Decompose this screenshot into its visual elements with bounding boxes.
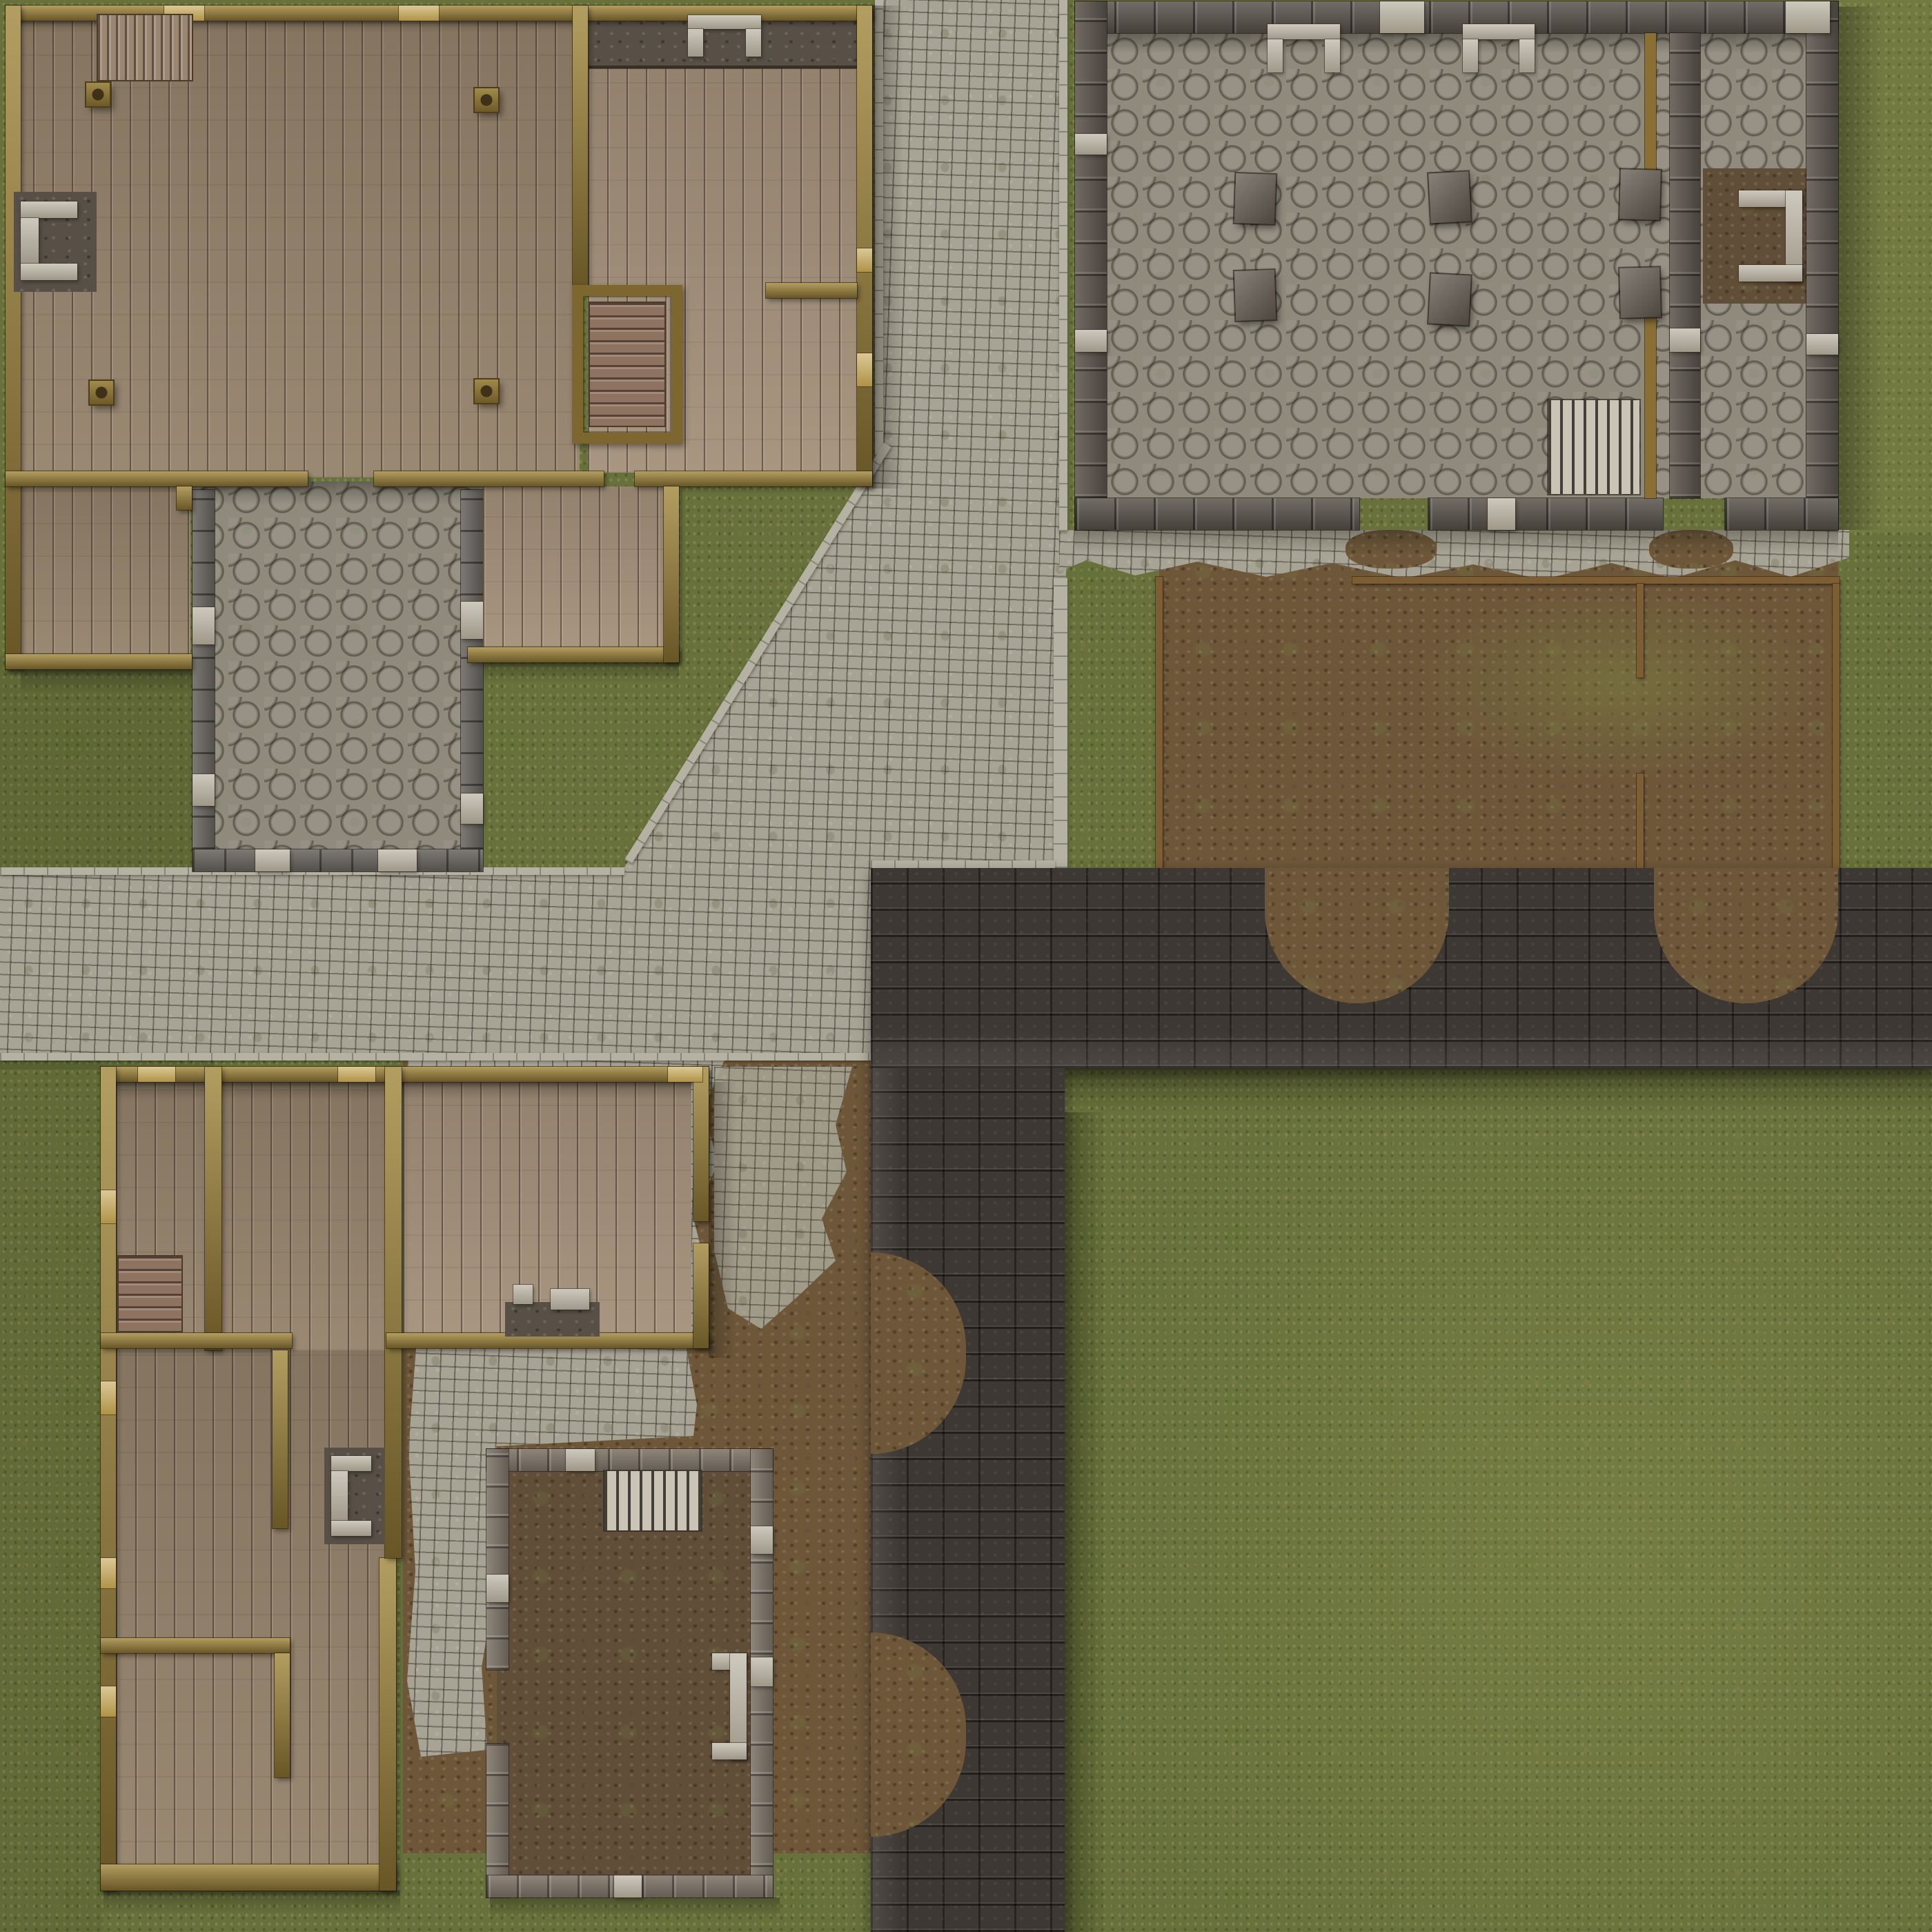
house-wall-interior-v2 [205,1067,221,1350]
house-floor-hall [116,1350,388,1875]
alcove-forge-leg-e [746,29,761,57]
alcove-forge-top [688,15,761,29]
shed-wall-north [486,1449,773,1471]
house-window-n2 [338,1067,375,1082]
house-wall-south [101,1864,396,1891]
support-post-4 [475,379,498,403]
crate-1 [1234,173,1276,224]
shed-wall-west-2 [486,1744,509,1897]
crate-2 [1428,172,1471,224]
house-wall-v3 [275,1653,290,1777]
roadside-wall-east [1054,578,1067,868]
patio-flagstones [193,482,483,872]
battle-map-canvas[interactable] [0,0,1932,1932]
door-bracket-2-leg-w [1463,39,1478,72]
door-bracket-1-top [1268,24,1340,39]
shadow-house-east [709,1082,736,1358]
crate-5 [1428,274,1471,326]
barracks-door-n2 [1786,1,1830,33]
tavern-stairs-down [589,302,666,427]
house-wall-h2 [101,1638,290,1653]
shed-wall-accent-2 [751,1526,773,1554]
alcove-edge-line [588,66,858,69]
shadow-se-room-south [483,662,679,683]
tavern-wall-interior-stub-e [766,283,857,298]
barracks-screen-s [1645,301,1656,498]
door-bracket-2-top [1463,24,1535,39]
shadow-wall-east [1065,1112,1106,1932]
fence-yard-west [1156,577,1163,869]
barracks-stair-grate [1548,400,1639,494]
shed-door-s [614,1875,642,1897]
house-wall-interior-v1 [385,1067,402,1558]
house-window-n3 [668,1067,702,1082]
patio-wall-accent-4 [461,793,483,824]
shed-wall-south-1 [486,1875,614,1897]
tavern-wall-south-1 [6,471,308,486]
crate-4 [1234,270,1276,321]
tavern-wall-west [6,6,21,669]
barracks-wall-south-2 [1428,498,1663,530]
barracks-wall-north [1075,1,1838,33]
tavern-wall-sw-stub [177,486,192,510]
curb-xroad-bottom [0,1053,871,1061]
shed-wall-west-1 [486,1449,509,1670]
fence-yard-mid-2 [1637,773,1644,869]
tavern-floor-se-room [483,486,664,647]
barracks-wall-south-1 [1075,498,1359,530]
barracks-door-w1 [1075,134,1107,155]
house-hearth-top [331,1456,371,1471]
shadow-barracks-east [1838,7,1882,530]
house-altar-block-1 [513,1285,533,1304]
alcove-forge-leg-w [688,29,703,57]
tavern-window-n2 [399,6,439,21]
house-window-w2 [101,1381,116,1414]
house-wall-L1 [273,1350,288,1528]
shadow-house-south [103,1891,400,1915]
house-window-w1 [101,1190,116,1223]
shadow-shed-south [490,1897,780,1918]
house-wall-east-lower [379,1558,396,1891]
barracks-screen-n [1645,33,1656,174]
tavern-hearth-side [21,218,39,264]
support-post-3 [90,381,113,404]
house-altar-block-2 [551,1289,589,1310]
shed-wall-accent-3 [751,1657,773,1686]
barracks-shade-north [1107,33,1806,54]
barracks-door-int [1670,328,1700,352]
castle-wall-highlight-h [871,1029,1932,1068]
barracks-wall-east [1806,1,1838,530]
door-bracket-1-leg-e [1325,39,1340,72]
patio-gate-threshold-west [255,849,290,871]
barracks-hearth-bottom [1739,265,1802,282]
shadow-tavern-south [21,669,192,693]
fence-yard-east [1833,584,1840,869]
house-stairs [117,1255,183,1332]
house-floor-ne-room [403,1082,691,1333]
door-bracket-2-leg-e [1519,39,1535,72]
shed-wall-accent-1 [486,1575,509,1602]
grass-shade-left-lower [0,1060,103,1932]
house-wall-north [101,1067,709,1082]
barracks-door-s-accent [1488,498,1515,530]
patio-wall-accent-2 [193,774,215,806]
house-shade-north [116,1082,691,1100]
barracks-door-e1 [1806,334,1838,355]
tavern-wall-south-3 [635,471,872,486]
barracks-wall-west [1075,1,1107,530]
house-wall-east-upper-2 [693,1243,709,1348]
barracks-wall-interior [1670,33,1700,498]
barracks-door-n1 [1380,1,1424,33]
crate-6 [1619,267,1661,317]
fence-yard-mid-1 [1637,584,1644,678]
shadow-wall-south [1065,1068,1932,1112]
shed-grate [604,1471,701,1530]
grass-light-se-field [1065,1068,1932,1932]
support-post-1 [86,83,110,106]
support-post-2 [475,88,498,112]
barracks-door-w2 [1075,330,1107,352]
tavern-window-e2 [857,248,872,272]
fence-yard-north [1352,577,1840,584]
shadow-barracks-south [1075,530,1838,553]
house-window-w4 [101,1686,116,1717]
shed-wall-south-2 [642,1875,773,1897]
tavern-wall-se-bottom [468,647,679,662]
tavern-hearth-top [21,201,77,218]
shadow-tavern-east [872,6,904,489]
tavern-wall-sw-bottom [6,654,192,669]
shed-wall-accent-4 [566,1449,595,1471]
curb-wallfoot [871,860,1055,868]
house-hearth-side [331,1471,348,1521]
tavern-wall-se-east [664,486,679,662]
patio-wall-accent-3 [461,602,483,639]
house-window-w3 [101,1558,116,1588]
house-wall-mid-1 [101,1333,292,1348]
tavern-wall-east [857,6,872,486]
tavern-wall-south-2 [374,471,604,486]
patio-gate-threshold-east [378,849,417,871]
curb-road-right [1059,0,1067,531]
shed-bench-bottom [712,1743,747,1759]
house-hearth-bottom [331,1521,371,1536]
barracks-wall-south-3 [1725,498,1838,530]
house-window-n1 [138,1067,175,1082]
crate-3 [1619,169,1661,219]
patio-wall-south [193,849,483,871]
tavern-window-e1 [857,353,872,386]
tavern-stairs-nw [97,14,193,81]
patio-wall-accent-1 [193,607,215,644]
tavern-hearth-bottom [21,264,77,280]
tavern-wall-interior-v [573,6,588,286]
grass-tuft-yard-ne [1414,586,1828,780]
tavern-floor-sw-room [14,486,190,654]
house-wall-east-upper-1 [693,1067,709,1221]
door-bracket-1-leg-w [1268,39,1283,72]
